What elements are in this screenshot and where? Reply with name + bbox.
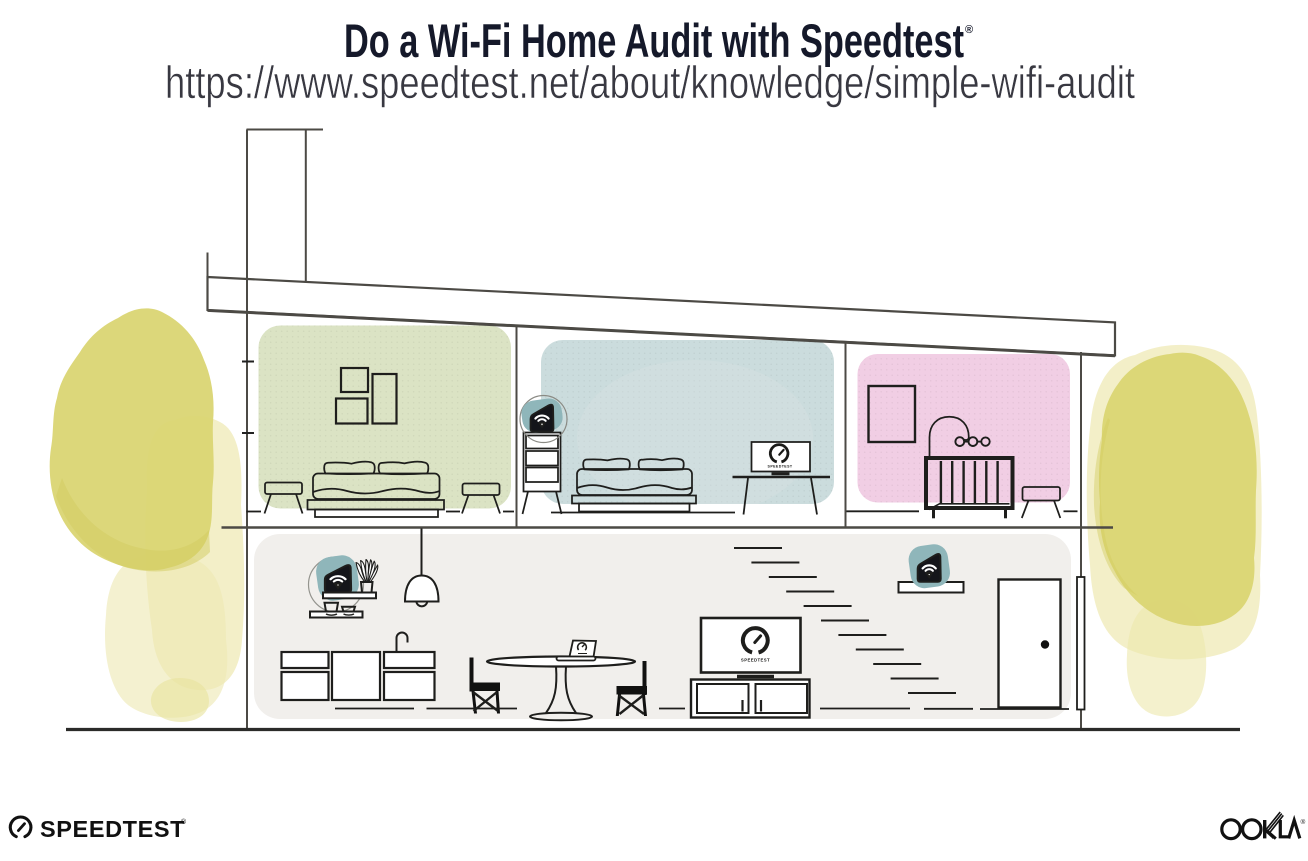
svg-text:®: ® [965, 24, 973, 36]
svg-text:https://www.speedtest.net/abou: https://www.speedtest.net/about/knowledg… [165, 57, 1135, 108]
svg-text:®: ® [1301, 818, 1306, 826]
svg-text:SPEEDTEST: SPEEDTEST [40, 816, 185, 842]
svg-text:®: ® [181, 818, 187, 826]
svg-text:SPEEDTEST: SPEEDTEST [741, 658, 770, 663]
svg-text:SPEEDTEST: SPEEDTEST [768, 465, 793, 469]
